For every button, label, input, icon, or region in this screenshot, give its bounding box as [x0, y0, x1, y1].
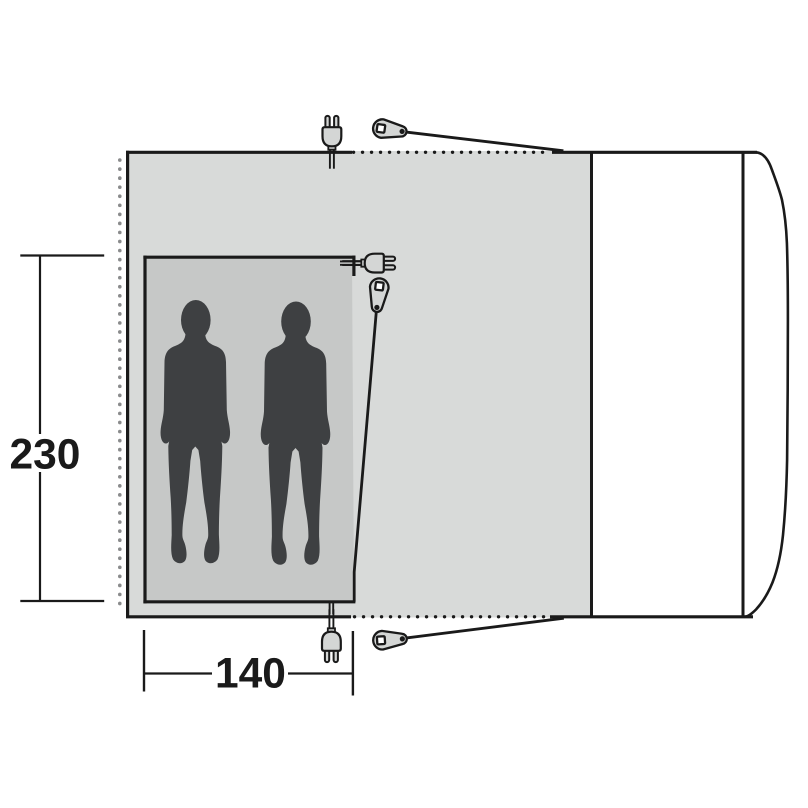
svg-text:140: 140 [215, 651, 286, 698]
svg-text:230: 230 [10, 432, 81, 479]
